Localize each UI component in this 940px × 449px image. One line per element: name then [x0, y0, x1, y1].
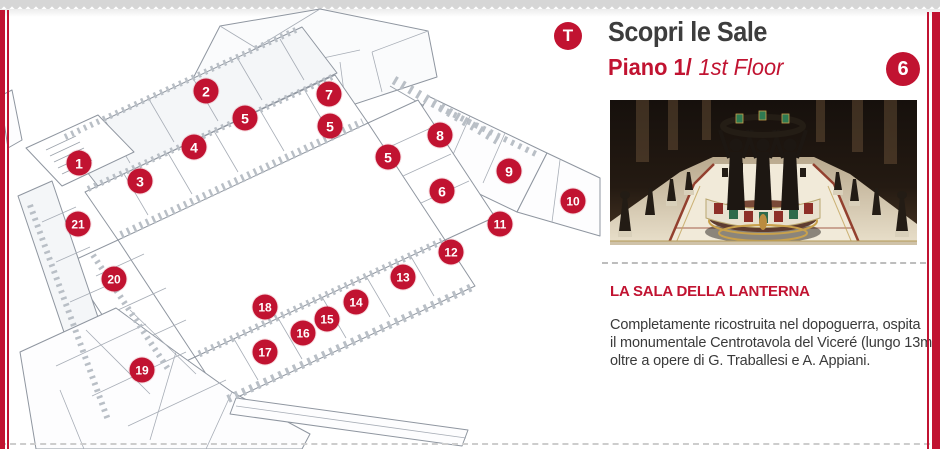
room-number-badge-label: 6 — [897, 58, 908, 81]
room-marker: 17 — [253, 340, 278, 365]
room-marker: 10 — [561, 189, 586, 214]
section-body-line: Completamente ricostruita nel dopoguerra… — [610, 316, 940, 334]
page-subtitle: Piano 1/1st Floor — [608, 54, 783, 81]
brochure-page: 12345556789101112131415161718192021 T Sc… — [0, 0, 940, 449]
page-title: Scopri le Sale — [608, 16, 767, 48]
room-marker: 8 — [428, 123, 453, 148]
room-marker: 5 — [233, 106, 258, 131]
room-marker: 3 — [128, 169, 153, 194]
room-marker: 16 — [291, 321, 316, 346]
t-badge: T — [554, 22, 582, 50]
section-body-line: il monumentale Centrotavola del Viceré (… — [610, 334, 940, 352]
left-red-rule-thin — [7, 10, 9, 449]
room-marker: 14 — [344, 290, 369, 315]
room-marker: 6 — [430, 179, 455, 204]
room-marker: 2 — [194, 79, 219, 104]
right-red-rule-thin — [927, 12, 929, 449]
floor-label-it: Piano 1/ — [608, 54, 692, 80]
section-divider — [602, 262, 926, 264]
map-markers: 12345556789101112131415161718192021 — [0, 0, 610, 449]
room-marker: 7 — [317, 82, 342, 107]
right-red-rule-thick — [932, 12, 940, 449]
room-marker: 11 — [488, 212, 513, 237]
centrotavola-photo-art — [610, 100, 917, 245]
room-marker: 15 — [315, 307, 340, 332]
room-number-badge: 6 — [886, 52, 920, 86]
room-marker: 18 — [253, 295, 278, 320]
room-marker: 12 — [439, 240, 464, 265]
room-marker: 13 — [391, 265, 416, 290]
room-marker: 1 — [67, 151, 92, 176]
floor-label-en: 1st Floor — [698, 54, 783, 80]
room-marker: 21 — [66, 212, 91, 237]
section-body: Completamente ricostruita nel dopoguerra… — [610, 316, 940, 370]
room-photo — [610, 100, 917, 245]
room-marker: 9 — [497, 159, 522, 184]
room-marker: 5 — [376, 145, 401, 170]
room-marker: 19 — [130, 358, 155, 383]
room-marker: 5 — [318, 114, 343, 139]
t-badge-label: T — [563, 26, 573, 46]
section-heading: LA SALA DELLA LANTERNA — [610, 283, 810, 300]
room-marker: 20 — [102, 267, 127, 292]
section-body-line: oltre a opere di G. Traballesi e A. Appi… — [610, 352, 940, 370]
room-marker: 4 — [182, 135, 207, 160]
left-red-rule-thick — [0, 10, 5, 449]
